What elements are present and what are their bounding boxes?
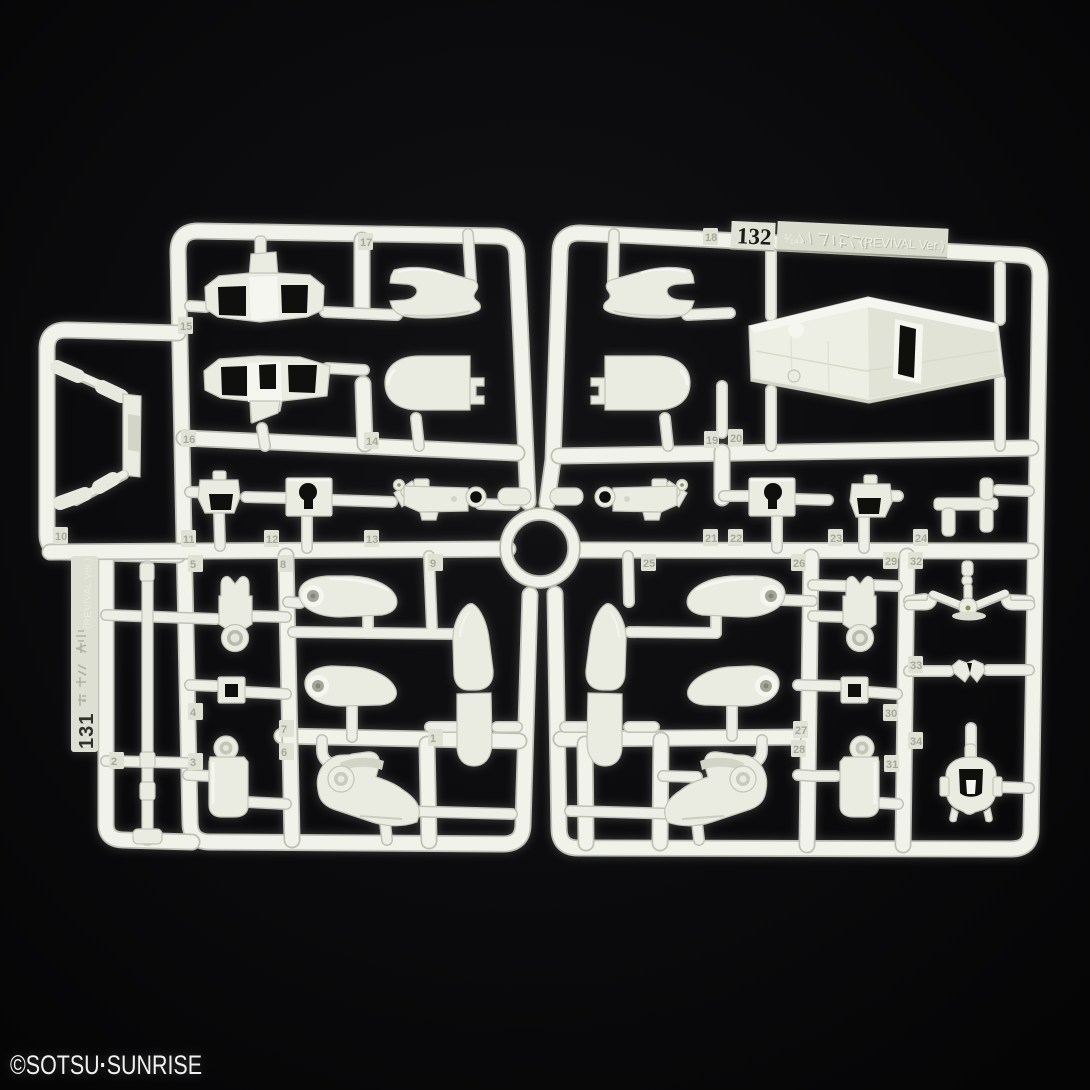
svg-text:2: 2 (111, 756, 117, 768)
svg-text:14: 14 (366, 436, 379, 448)
svg-text:23: 23 (830, 533, 842, 545)
svg-text:29: 29 (885, 556, 897, 568)
svg-text:7: 7 (281, 724, 287, 736)
svg-text:33: 33 (910, 660, 922, 672)
svg-text:©SOTSU·SUNRISE: ©SOTSU·SUNRISE (10, 1050, 202, 1080)
svg-text:12: 12 (266, 534, 278, 546)
svg-text:11: 11 (183, 534, 195, 546)
svg-text:20: 20 (730, 433, 742, 445)
svg-text:22: 22 (730, 533, 742, 545)
svg-text:¹⁄₁₄₄: ¹⁄₁₄₄ (784, 231, 805, 246)
svg-text:9: 9 (430, 558, 436, 570)
svg-text:(REVIVAL Ver.): (REVIVAL Ver.) (82, 558, 94, 629)
svg-text:4: 4 (190, 707, 197, 719)
svg-text:5: 5 (190, 559, 196, 571)
svg-text:34: 34 (910, 736, 923, 748)
svg-text:19: 19 (706, 435, 718, 447)
svg-text:10: 10 (55, 531, 67, 543)
svg-text:18: 18 (705, 232, 717, 244)
svg-text:6: 6 (281, 747, 287, 759)
svg-text:27: 27 (795, 725, 807, 737)
svg-text:28: 28 (793, 744, 805, 756)
svg-text:8: 8 (280, 559, 286, 571)
svg-text:13: 13 (366, 534, 378, 546)
svg-text:17: 17 (360, 237, 372, 249)
svg-text:132: 132 (736, 223, 772, 250)
svg-text:3: 3 (190, 757, 196, 769)
svg-text:32: 32 (910, 556, 922, 568)
svg-text:25: 25 (643, 558, 655, 570)
svg-text:1: 1 (430, 733, 436, 745)
svg-text:26: 26 (793, 558, 805, 570)
svg-text:30: 30 (885, 708, 897, 720)
svg-text:21: 21 (705, 533, 717, 545)
svg-text:31: 31 (886, 759, 898, 771)
svg-text:24: 24 (915, 533, 928, 545)
svg-text:15: 15 (180, 321, 192, 333)
svg-text:16: 16 (183, 434, 195, 446)
svg-text:131: 131 (76, 713, 98, 749)
